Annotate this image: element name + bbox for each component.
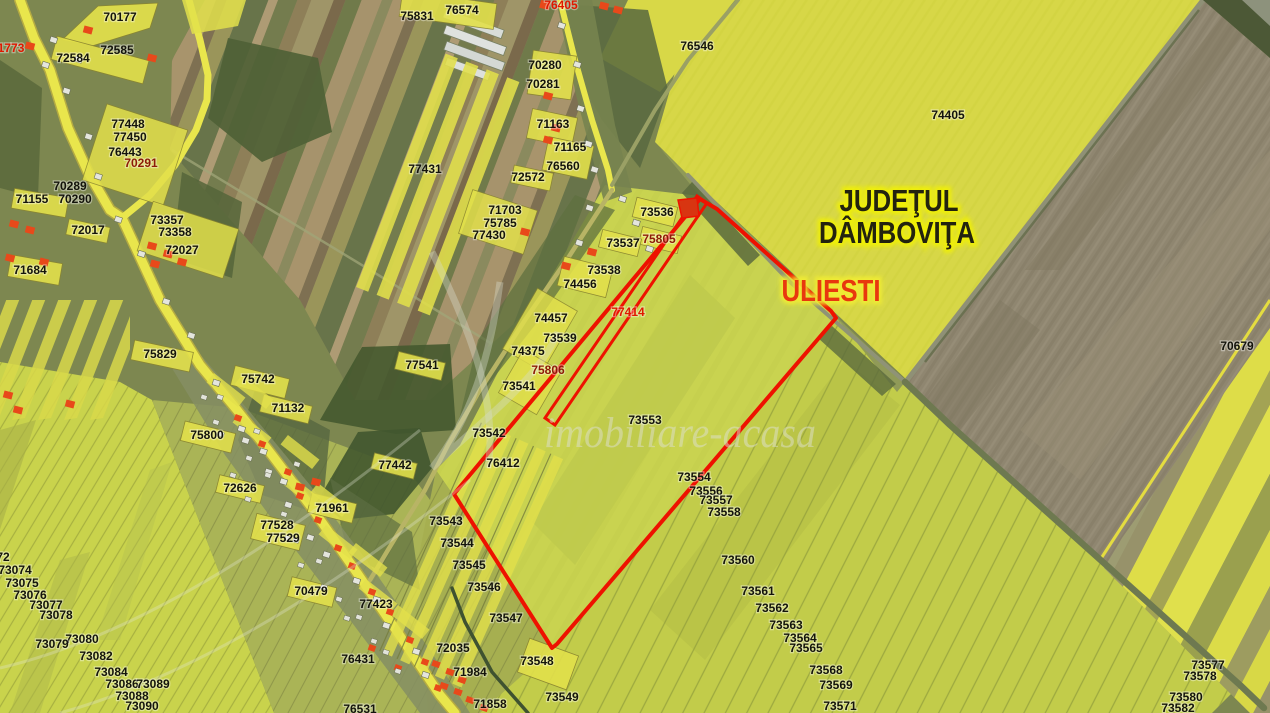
svg-text:70280: 70280: [528, 58, 562, 72]
svg-text:73537: 73537: [606, 236, 640, 250]
svg-text:77450: 77450: [113, 130, 147, 144]
svg-text:77423: 77423: [359, 597, 393, 611]
svg-text:73568: 73568: [809, 663, 843, 677]
svg-text:73558: 73558: [707, 505, 741, 519]
svg-text:77414: 77414: [611, 305, 645, 319]
svg-text:73549: 73549: [545, 690, 579, 704]
svg-text:73562: 73562: [755, 601, 789, 615]
svg-text:73079: 73079: [35, 637, 69, 651]
svg-text:73090: 73090: [125, 699, 159, 713]
svg-text:74457: 74457: [534, 311, 568, 325]
svg-text:73074: 73074: [0, 563, 32, 577]
svg-text:ULIESTI: ULIESTI: [782, 273, 881, 308]
svg-text:74375: 74375: [511, 344, 545, 358]
svg-text:76431: 76431: [341, 652, 375, 666]
svg-text:77431: 77431: [408, 162, 442, 176]
svg-text:71132: 71132: [272, 401, 305, 415]
svg-text:76546: 76546: [680, 39, 714, 53]
svg-text:70291: 70291: [124, 156, 158, 170]
svg-text:72: 72: [0, 550, 10, 564]
svg-text:72585: 72585: [100, 43, 134, 57]
svg-text:75800: 75800: [190, 428, 224, 442]
svg-text:73582: 73582: [1161, 701, 1195, 713]
svg-text:72584: 72584: [56, 51, 90, 65]
svg-text:71703: 71703: [488, 203, 522, 217]
svg-text:75742: 75742: [241, 372, 275, 386]
svg-text:77529: 77529: [266, 531, 300, 545]
svg-text:73076: 73076: [13, 588, 47, 602]
svg-text:76412: 76412: [486, 456, 520, 470]
svg-text:73565: 73565: [789, 641, 823, 655]
svg-text:73543: 73543: [429, 514, 463, 528]
svg-text:76405: 76405: [544, 0, 578, 12]
svg-text:71984: 71984: [453, 665, 487, 679]
svg-text:73571: 73571: [823, 699, 857, 713]
svg-text:71155: 71155: [16, 192, 49, 206]
svg-text:JUDEŢUL: JUDEŢUL: [840, 183, 959, 218]
svg-text:70177: 70177: [103, 10, 137, 24]
svg-text:70281: 70281: [526, 77, 560, 91]
svg-text:71858: 71858: [473, 697, 507, 711]
svg-text:77528: 77528: [260, 518, 294, 532]
svg-text:71165: 71165: [554, 140, 587, 154]
svg-text:DÂMBOVIŢA: DÂMBOVIŢA: [819, 214, 975, 250]
svg-text:77442: 77442: [378, 458, 412, 472]
svg-text:73578: 73578: [1183, 669, 1217, 683]
svg-text:73080: 73080: [65, 632, 99, 646]
svg-text:77430: 77430: [472, 228, 506, 242]
svg-text:73544: 73544: [440, 536, 474, 550]
svg-text:70679: 70679: [1220, 339, 1254, 353]
svg-text:73358: 73358: [158, 225, 192, 239]
svg-text:72035: 72035: [436, 641, 470, 655]
svg-text:76574: 76574: [445, 3, 479, 17]
svg-text:73561: 73561: [741, 584, 775, 598]
svg-text:73545: 73545: [452, 558, 486, 572]
svg-text:73554: 73554: [677, 470, 711, 484]
svg-text:73538: 73538: [587, 263, 621, 277]
svg-text:77541: 77541: [405, 358, 439, 372]
svg-text:imobiliare-acasa: imobiliare-acasa: [544, 410, 816, 457]
svg-text:76531: 76531: [343, 702, 377, 713]
svg-text:75829: 75829: [143, 347, 177, 361]
svg-text:76560: 76560: [546, 159, 580, 173]
svg-text:71163: 71163: [537, 117, 570, 131]
svg-text:73569: 73569: [819, 678, 853, 692]
svg-text:74456: 74456: [563, 277, 597, 291]
svg-text:77448: 77448: [111, 117, 145, 131]
svg-text:75806: 75806: [531, 363, 565, 377]
svg-text:72027: 72027: [165, 243, 199, 257]
svg-text:73539: 73539: [543, 331, 577, 345]
svg-text:74405: 74405: [931, 108, 965, 122]
svg-text:70479: 70479: [294, 584, 328, 598]
svg-text:70290: 70290: [58, 192, 92, 206]
svg-text:70289: 70289: [53, 179, 87, 193]
svg-text:72572: 72572: [511, 170, 545, 184]
svg-text:73082: 73082: [79, 649, 113, 663]
svg-text:73560: 73560: [721, 553, 755, 567]
svg-text:75831: 75831: [400, 9, 434, 23]
svg-text:71684: 71684: [13, 263, 47, 277]
svg-text:73542: 73542: [472, 426, 506, 440]
svg-text:73553: 73553: [628, 413, 662, 427]
svg-text:73547: 73547: [489, 611, 523, 625]
svg-text:73536: 73536: [640, 205, 674, 219]
svg-text:72626: 72626: [223, 481, 257, 495]
svg-text:73548: 73548: [520, 654, 554, 668]
svg-text:75805: 75805: [642, 232, 676, 246]
svg-text:73541: 73541: [502, 379, 536, 393]
svg-text:71961: 71961: [315, 501, 349, 515]
svg-text:71773: 71773: [0, 41, 25, 55]
svg-text:73546: 73546: [467, 580, 501, 594]
svg-text:72017: 72017: [71, 223, 105, 237]
svg-text:73563: 73563: [769, 618, 803, 632]
svg-text:73078: 73078: [39, 608, 73, 622]
